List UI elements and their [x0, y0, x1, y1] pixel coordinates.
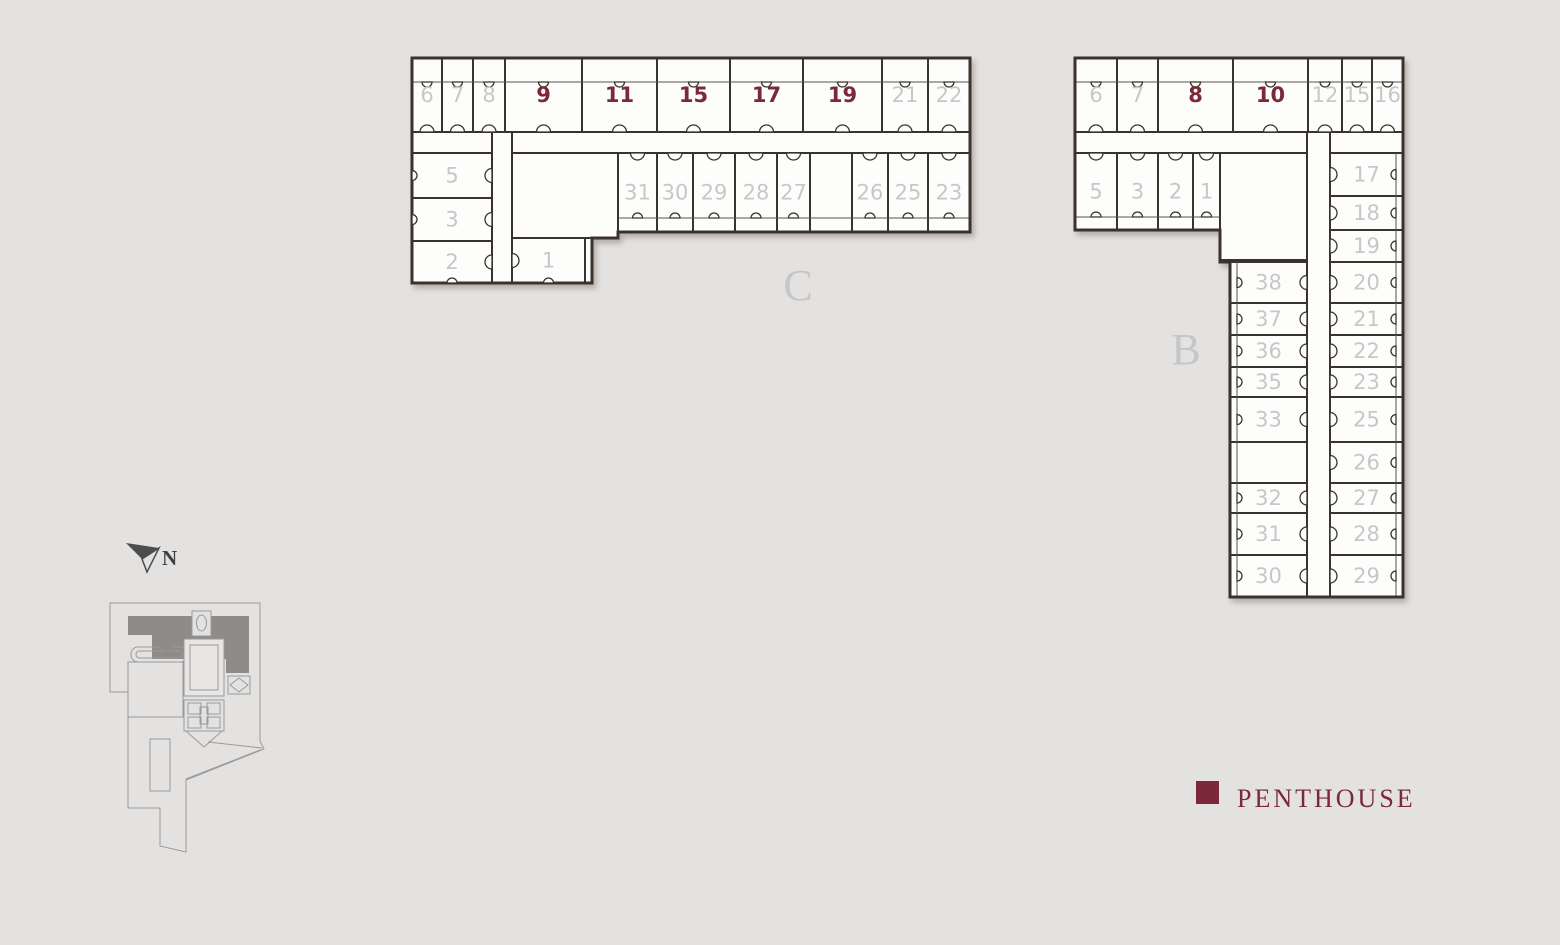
room-label-C-22: 22 [936, 83, 963, 107]
corridor-B-0 [1075, 132, 1403, 153]
site-parterre [184, 700, 224, 731]
door-arc-B-37 [1237, 314, 1242, 324]
door-arc-B-3 [1133, 212, 1143, 217]
site-parterre-q2 [207, 703, 220, 714]
site-parterre-q3 [188, 717, 201, 728]
site-parterre-q1 [188, 703, 201, 714]
site-plaza [228, 676, 250, 694]
room-label-B-6: 6 [1089, 83, 1102, 107]
room-label-B-23: 23 [1353, 370, 1380, 394]
room-label-C-27: 27 [780, 181, 807, 205]
door-arc-C-30 [670, 213, 680, 218]
site-plaza-diamond [230, 678, 248, 692]
room-label-C-15[interactable]: 15 [679, 83, 708, 107]
building-C: 678911151719212253213130292827262523 [412, 58, 970, 283]
door-arc-B-2 [1171, 212, 1181, 217]
room-label-C-29: 29 [701, 181, 728, 205]
room-label-B-33: 33 [1255, 408, 1282, 432]
site-roads [186, 742, 262, 779]
door-arc-B-25 [1391, 415, 1396, 425]
door-arc-C-3 [412, 215, 417, 225]
room-label-B-37: 37 [1255, 307, 1282, 331]
room-label-B-1: 1 [1200, 180, 1213, 204]
room-label-C-11[interactable]: 11 [605, 83, 634, 107]
site-apse [186, 731, 222, 747]
room-label-C-17[interactable]: 17 [752, 83, 781, 107]
room-label-B-2: 2 [1169, 180, 1182, 204]
room-label-B-7: 7 [1131, 83, 1144, 107]
door-arc-B-19 [1391, 241, 1396, 251]
room-label-B-38: 38 [1255, 271, 1282, 295]
door-arc-C-29 [709, 213, 719, 218]
room-label-B-20: 20 [1353, 271, 1380, 295]
penthouse-legend-label: PENTHOUSE [1237, 784, 1416, 813]
room-label-B-17: 17 [1353, 163, 1380, 187]
door-arc-C-25 [903, 213, 913, 218]
site-parterre-q4 [207, 717, 220, 728]
room-label-B-12: 12 [1312, 83, 1339, 107]
room-label-C-9[interactable]: 9 [536, 83, 551, 107]
penthouse-legend: PENTHOUSE [1196, 781, 1416, 813]
room-label-B-15: 15 [1344, 83, 1371, 107]
corridor-C-1 [492, 132, 512, 283]
room-label-B-5: 5 [1089, 180, 1102, 204]
door-arc-B-28 [1391, 529, 1396, 539]
room-B-unlabeled [1220, 153, 1307, 260]
room-label-C-23: 23 [936, 181, 963, 205]
door-arc-B-38 [1237, 278, 1242, 288]
site-key-map [110, 603, 264, 852]
door-arc-B-33 [1237, 415, 1242, 425]
room-label-C-5: 5 [445, 164, 458, 188]
room-label-B-31: 31 [1255, 522, 1282, 546]
door-arc-B-29 [1391, 571, 1396, 581]
room-label-C-21: 21 [892, 83, 919, 107]
room-label-B-21: 21 [1353, 307, 1380, 331]
door-arc-C-23 [944, 213, 954, 218]
room-label-B-18: 18 [1353, 201, 1380, 225]
building-letter-C: C [783, 261, 812, 310]
room-C-unlabeled [512, 153, 618, 238]
floorplan-page: 678911151719212253213130292827262523C678… [0, 0, 1560, 945]
building-letter-B: B [1171, 325, 1200, 374]
door-arc-C-31 [633, 213, 643, 218]
room-label-B-26: 26 [1353, 451, 1380, 475]
room-label-C-26: 26 [857, 181, 884, 205]
door-arc-B-5 [1091, 212, 1101, 217]
door-arc-B-21 [1391, 314, 1396, 324]
room-label-C-31: 31 [624, 181, 651, 205]
building-B: 6781012151653211718192021222325262728293… [1075, 58, 1403, 597]
room-label-C-28: 28 [743, 181, 770, 205]
door-arc-B-26 [1391, 458, 1396, 468]
door-arc-B-18 [1391, 208, 1396, 218]
room-label-C-1: 1 [542, 249, 555, 273]
room-B-unlabeled [1230, 442, 1307, 483]
door-arc-B-27 [1391, 493, 1396, 503]
room-label-B-28: 28 [1353, 522, 1380, 546]
buildings-layer: 678911151719212253213130292827262523C678… [412, 58, 1403, 597]
room-label-B-29: 29 [1353, 564, 1380, 588]
room-label-C-3: 3 [445, 208, 458, 232]
door-arc-B-20 [1391, 278, 1396, 288]
door-arc-B-23 [1391, 377, 1396, 387]
door-arc-B-30 [1237, 571, 1242, 581]
door-arc-B-36 [1237, 346, 1242, 356]
room-label-B-19: 19 [1353, 234, 1380, 258]
floorplan-svg: 678911151719212253213130292827262523C678… [0, 0, 1560, 945]
site-lawn [128, 662, 183, 717]
room-label-B-10[interactable]: 10 [1256, 83, 1285, 107]
room-label-C-7: 7 [451, 83, 464, 107]
room-label-B-36: 36 [1255, 339, 1282, 363]
room-label-B-25: 25 [1353, 408, 1380, 432]
door-arc-B-22 [1391, 346, 1396, 356]
room-label-C-19[interactable]: 19 [828, 83, 857, 107]
room-label-B-16: 16 [1374, 83, 1401, 107]
corridor-B-1 [1307, 132, 1330, 597]
door-arc-C-28 [751, 213, 761, 218]
door-arc-B-31 [1237, 529, 1242, 539]
penthouse-legend-swatch [1196, 781, 1219, 804]
room-C-unlabeled [810, 153, 852, 232]
door-arc-B-32 [1237, 493, 1242, 503]
room-label-B-8[interactable]: 8 [1188, 83, 1203, 107]
room-label-B-3: 3 [1131, 180, 1144, 204]
site-pool [150, 739, 170, 791]
room-label-B-30: 30 [1255, 564, 1282, 588]
door-arc-C-26 [865, 213, 875, 218]
door-arc-C-27 [789, 213, 799, 218]
door-arc-B-1 [1202, 212, 1212, 217]
north-indicator: N [126, 543, 177, 572]
room-label-B-22: 22 [1353, 339, 1380, 363]
room-label-C-30: 30 [662, 181, 689, 205]
room-label-B-27: 27 [1353, 486, 1380, 510]
room-label-B-32: 32 [1255, 486, 1282, 510]
door-arc-C-2 [447, 278, 457, 283]
door-arc-B-17 [1391, 170, 1396, 180]
door-arc-C-1 [544, 278, 554, 283]
room-label-C-6: 6 [420, 83, 433, 107]
room-label-C-25: 25 [895, 181, 922, 205]
room-label-C-8: 8 [482, 83, 495, 107]
north-label: N [162, 546, 177, 570]
room-label-B-35: 35 [1255, 370, 1282, 394]
door-arc-C-5 [412, 171, 417, 181]
door-arc-B-35 [1237, 377, 1242, 387]
room-label-C-2: 2 [445, 250, 458, 274]
